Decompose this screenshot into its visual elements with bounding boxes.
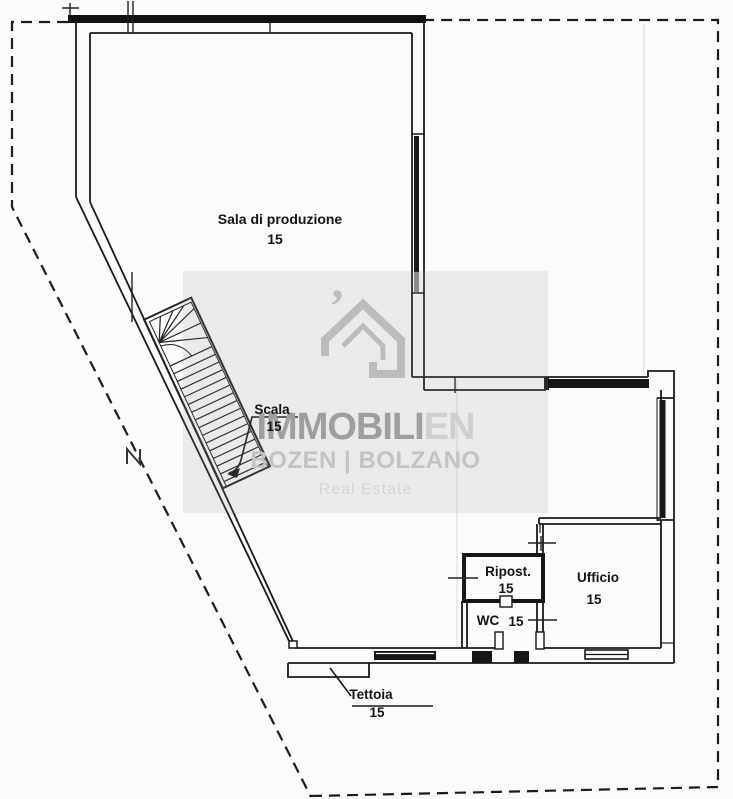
- watermark-brand-light: EN: [424, 406, 475, 448]
- room-area-ufficio: 15: [586, 592, 601, 608]
- room-label-wc: WC: [477, 613, 500, 629]
- ripostiglio-door-notch: [500, 596, 512, 607]
- room-area-ripost: 15: [498, 581, 513, 597]
- pier-bottom-wall-right: [514, 651, 529, 663]
- wc-door-jamb-right: [536, 632, 544, 649]
- window-bottom-wall: [374, 651, 436, 660]
- n-mark: [127, 449, 140, 464]
- window-upper-right-wall: [414, 136, 419, 272]
- pier-bottom-wall-left: [472, 651, 492, 663]
- window-ufficio-right-wall: [660, 400, 666, 518]
- watermark-brand: IMMOBILIEN: [183, 408, 548, 446]
- watermark-tagline: Real Estate: [183, 481, 548, 499]
- window-wing-top-wall: [549, 379, 649, 388]
- wc-door-opening: [503, 645, 536, 650]
- floor-plan-page: ’ IMMOBILIEN BOZEN | BOLZANO Real Estate…: [0, 0, 733, 799]
- room-label-tettoia: Tettoia: [349, 687, 392, 703]
- room-area-sala: 15: [267, 231, 283, 247]
- watermark-location: BOZEN | BOLZANO: [183, 448, 548, 473]
- svg-text:’: ’: [329, 290, 345, 333]
- tettoia-leader: [330, 668, 351, 696]
- room-label-sala: Sala di produzione: [218, 211, 342, 227]
- room-area-tettoia: 15: [369, 705, 384, 721]
- room-area-wc: 15: [508, 614, 523, 630]
- room-label-ripost: Ripost.: [485, 564, 531, 580]
- wall-corner-block: [289, 641, 297, 648]
- room-label-scala: Scala: [254, 402, 289, 418]
- room-area-scala: 15: [266, 419, 281, 435]
- wc-door-jamb-left: [495, 632, 503, 649]
- room-label-ufficio: Ufficio: [577, 570, 619, 586]
- watermark-house-icon: ’: [313, 290, 413, 390]
- top-wall: [68, 15, 426, 23]
- tettoia-canopy: [288, 663, 369, 677]
